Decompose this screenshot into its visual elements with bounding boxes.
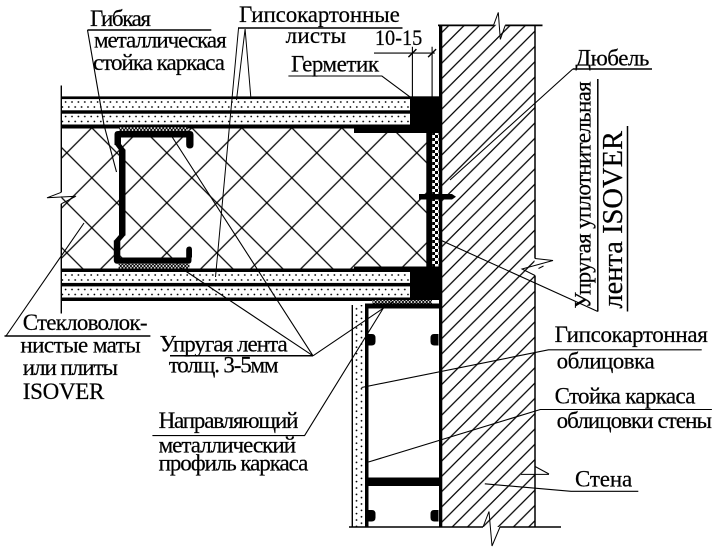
svg-text:стойка каркаса: стойка каркаса bbox=[93, 50, 225, 75]
svg-text:Упругая уплотнительная: Упругая уплотнительная bbox=[571, 81, 596, 309]
svg-text:Стойка каркаса: Стойка каркаса bbox=[555, 384, 696, 409]
svg-text:или плиты: или плиты bbox=[23, 355, 118, 380]
svg-text:ISOVER: ISOVER bbox=[23, 379, 105, 404]
svg-text:металлическая: металлическая bbox=[94, 28, 227, 53]
svg-text:листы: листы bbox=[286, 23, 347, 48]
svg-text:Гипсокартонная: Гипсокартонная bbox=[555, 322, 709, 347]
svg-text:Дюбель: Дюбель bbox=[575, 46, 649, 71]
svg-text:Стена: Стена bbox=[575, 467, 632, 492]
svg-text:Стекловолок-: Стекловолок- bbox=[23, 310, 148, 335]
svg-text:лента ISOVER: лента ISOVER bbox=[598, 131, 629, 309]
svg-text:Направляющий: Направляющий bbox=[159, 408, 299, 433]
svg-text:10-15: 10-15 bbox=[375, 25, 422, 50]
svg-text:профиль каркаса: профиль каркаса bbox=[159, 451, 309, 476]
svg-text:облицовки стены: облицовки стены bbox=[557, 408, 712, 433]
svg-text:Герметик: Герметик bbox=[291, 52, 380, 77]
svg-text:облицовка: облицовка bbox=[557, 349, 655, 374]
